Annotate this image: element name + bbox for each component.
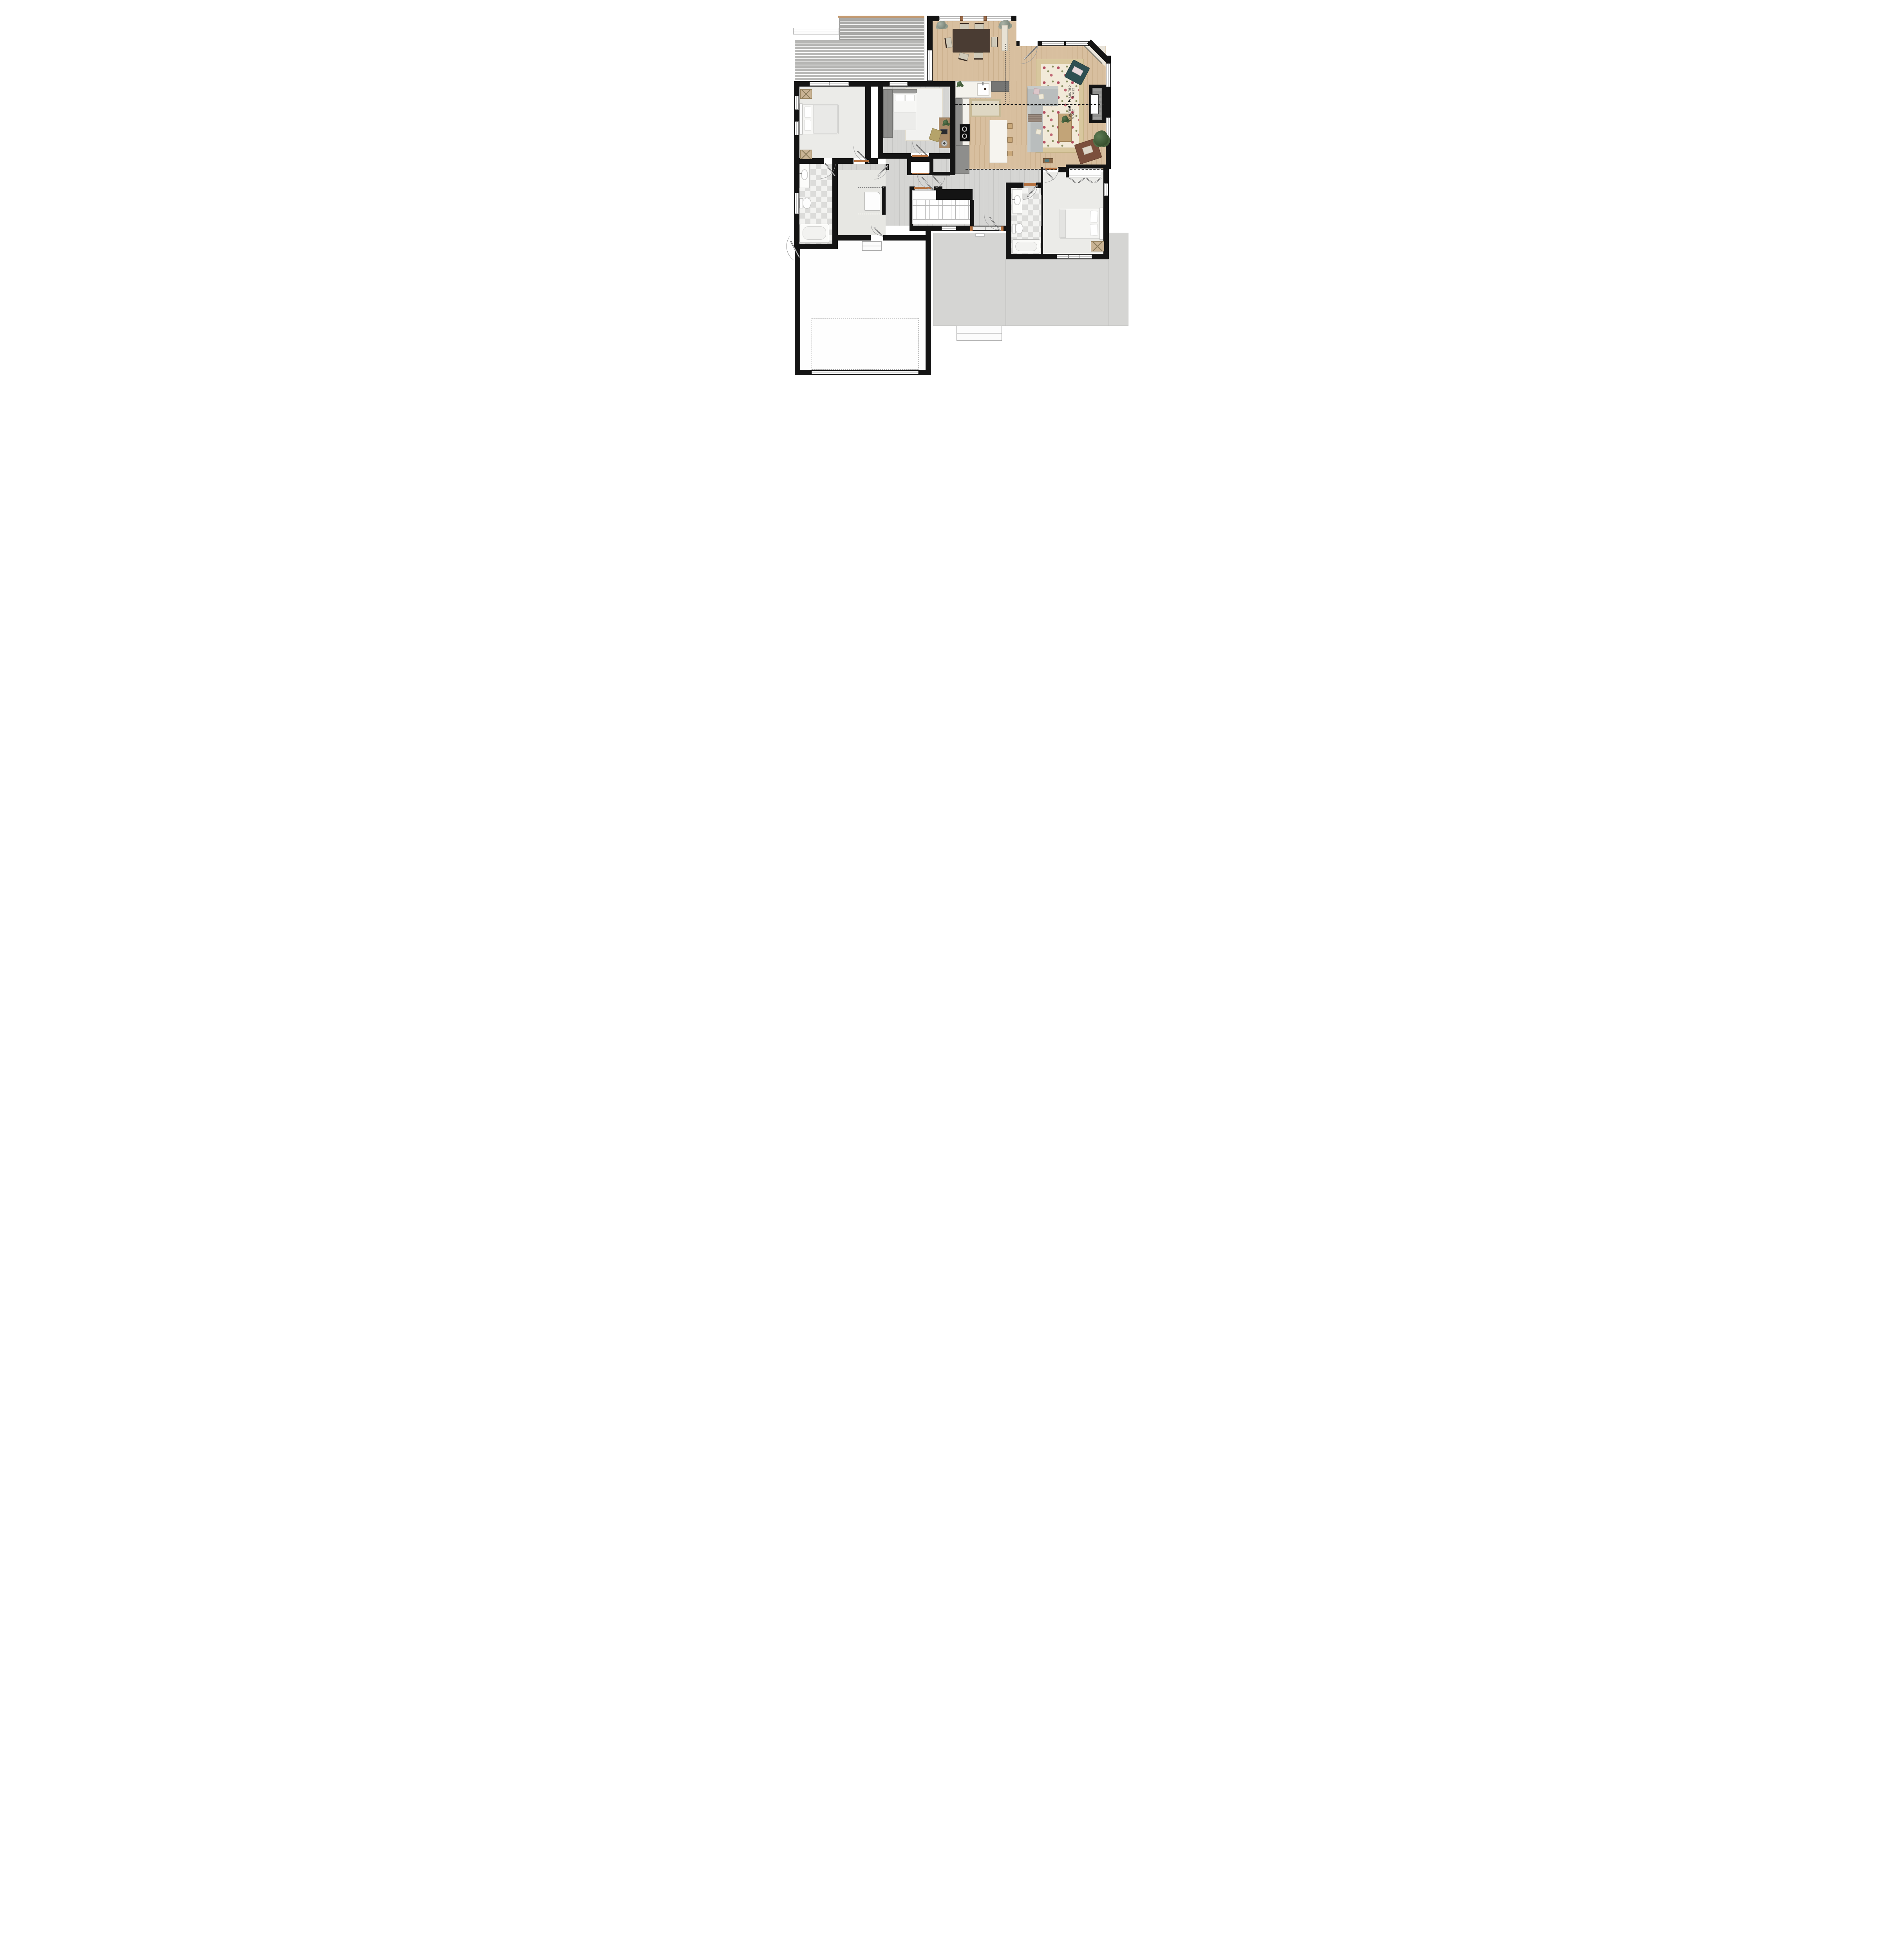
floor-tray-book — [1045, 159, 1049, 162]
dining-plant-left — [937, 21, 946, 29]
dining-chair — [974, 52, 983, 60]
garage-entry-steps — [862, 241, 882, 251]
master-bed-pillow — [1090, 224, 1098, 236]
garage-parking-outline — [812, 318, 919, 370]
vault-arrow-up — [1068, 99, 1071, 102]
kitchen-cabinet-south — [955, 145, 969, 174]
bedroom2-door-arc — [912, 140, 928, 156]
wall-bed1-south-c — [870, 158, 878, 164]
bedroom1-door-threshold — [854, 160, 869, 162]
stair-closet-interior — [912, 190, 936, 200]
master-south-window — [1057, 255, 1092, 259]
stair-wall-right — [970, 200, 974, 226]
wall-dining-north-left — [933, 16, 939, 21]
staircase — [912, 200, 970, 219]
bed2-desk-fan — [941, 140, 947, 146]
stair-wall-chunk — [936, 189, 973, 200]
deck-upper — [839, 18, 924, 40]
bed1-pillow — [804, 107, 811, 118]
patio-floor-east — [1109, 233, 1128, 326]
bed2-desk-plant — [943, 120, 948, 125]
kitchen-sink-faucet — [982, 82, 984, 85]
stove-burner-a — [962, 127, 967, 132]
master-nightstand — [1091, 241, 1104, 251]
deck-lower — [795, 40, 924, 80]
wall-garage-west — [795, 249, 800, 375]
patio-floor-left — [933, 233, 1006, 326]
laundry-shelf-dash-bottom — [858, 214, 884, 214]
garage-door — [812, 371, 919, 374]
master-bath-slider — [1042, 195, 1042, 226]
bath1-west-window — [795, 193, 799, 214]
living-east-window-upper — [1106, 63, 1110, 87]
staircase-bottom-trim — [912, 219, 970, 224]
wall-garage-top-b — [883, 235, 931, 241]
stove-burner-b — [962, 134, 967, 139]
bedroom2-north-window — [890, 82, 908, 86]
wall-kitchen-west — [950, 81, 955, 175]
wall-masterbath-west — [1006, 188, 1011, 259]
patio-floor-south — [1006, 259, 1109, 326]
wall-hall-stub — [933, 172, 950, 175]
wall-master-east — [1103, 165, 1109, 259]
bed1-pillow — [804, 120, 811, 131]
dining-chair — [944, 37, 952, 48]
kitchen-counter-plant — [957, 81, 962, 87]
wall-master-north — [1058, 167, 1066, 172]
wall-living-north-a — [1016, 41, 1020, 46]
kitchen-fridge — [991, 81, 1009, 92]
stair-south-window — [942, 226, 956, 230]
vault-label-upper-pitch: 3.5/12 — [1072, 81, 1076, 105]
laundry-washer — [864, 192, 880, 211]
bath1-tub-basin — [803, 226, 826, 240]
master-east-window — [1104, 183, 1108, 196]
dining-window-mullion — [960, 16, 963, 21]
vault-ridge-line — [955, 104, 1104, 105]
laundry-recess-wall — [882, 186, 886, 215]
bed2-pillow — [905, 95, 915, 101]
patio-steps — [957, 326, 1002, 341]
vault-edge-line-a — [1005, 44, 1006, 104]
dining-window-wall — [939, 16, 1011, 20]
dining-window-mullion — [984, 16, 987, 21]
master-closet-north — [1066, 165, 1103, 168]
dining-chair — [991, 37, 998, 47]
island-stool — [1007, 123, 1013, 129]
bed1-blanket — [813, 105, 838, 134]
bed1-headboard — [799, 103, 803, 135]
bath1-faucet — [799, 173, 802, 174]
master-closet-interior — [1069, 168, 1101, 177]
sofa-pillow-cream — [1038, 94, 1044, 99]
wall-bed2-south-a — [878, 153, 911, 159]
vault-arrow-down — [1068, 106, 1071, 109]
bed1-nightstand-top — [800, 89, 812, 99]
dining-sideboard — [1002, 25, 1008, 51]
wall-masterbath-north-a — [1006, 183, 1023, 188]
bed2-wardrobe — [883, 89, 893, 138]
master-bed-pillow — [1090, 210, 1098, 222]
bed2-blanket — [893, 112, 916, 130]
master-bed-headboard — [1099, 208, 1103, 240]
bedroom2-door-threshold — [912, 155, 928, 157]
bed2-pillow — [895, 95, 904, 101]
sofa-throw-blanket — [1028, 114, 1042, 122]
bath1-toilet-bowl — [803, 198, 811, 209]
island-stool — [1007, 137, 1013, 143]
bedroom1-west-window-b — [795, 121, 799, 135]
bedroom1-west-window-a — [795, 96, 799, 110]
bedroom1-north-window — [810, 82, 849, 86]
entry-jamb-left — [970, 226, 973, 231]
wall-dining-north-right — [1011, 16, 1016, 21]
kitchen-island — [989, 120, 1007, 163]
wall-garage-top-a — [838, 235, 871, 241]
wall-bath1-east — [832, 164, 838, 249]
island-stool — [1007, 151, 1013, 156]
wall-bed2-west — [878, 87, 883, 159]
sofa-sectional-side — [1027, 106, 1043, 152]
wall-garage-east — [926, 226, 931, 375]
bed2-headboard — [893, 89, 917, 93]
wall-bed1-south-b — [832, 158, 853, 164]
master-bed-blanket-fold — [1060, 210, 1066, 238]
living-north-window-mullion — [1064, 41, 1066, 46]
bath2-faucet — [1012, 199, 1015, 200]
living-corner-plant — [1094, 131, 1108, 146]
bath2-tub-basin — [1015, 242, 1037, 251]
vault-label-lower-pitch: 3.5/12 — [1072, 102, 1076, 126]
bath1-sink — [801, 169, 808, 180]
dining-chair — [975, 23, 984, 29]
entry-jamb-right — [1001, 226, 1004, 231]
floor-plan: VAULTED 3.5/12 VAULTED 3.5/12 — [762, 0, 1143, 389]
bath2-sink — [1014, 195, 1021, 205]
laundry-shelf-dash-top — [858, 187, 884, 188]
vault-edge-line-b — [1009, 44, 1009, 104]
master-closet-shelf — [1069, 175, 1101, 175]
bath2-toilet-bowl — [1015, 223, 1023, 234]
vault-break-line — [966, 169, 1103, 170]
kitchen-sink-drain — [984, 88, 986, 90]
sofa-pillow-cream — [1035, 129, 1041, 135]
deck-sliding-door — [928, 50, 932, 81]
bed1-nightstand-bottom — [800, 150, 812, 159]
coffee-table-plant — [1062, 116, 1068, 122]
linen-closet-interior — [911, 162, 929, 173]
staircase-landing-line — [912, 205, 970, 206]
master-closet-side — [1066, 165, 1069, 177]
entry-step — [975, 233, 985, 237]
deck-stairs — [793, 28, 839, 34]
kitchen-rug — [970, 99, 1001, 117]
dining-chair — [960, 23, 969, 29]
dining-table — [953, 29, 990, 52]
